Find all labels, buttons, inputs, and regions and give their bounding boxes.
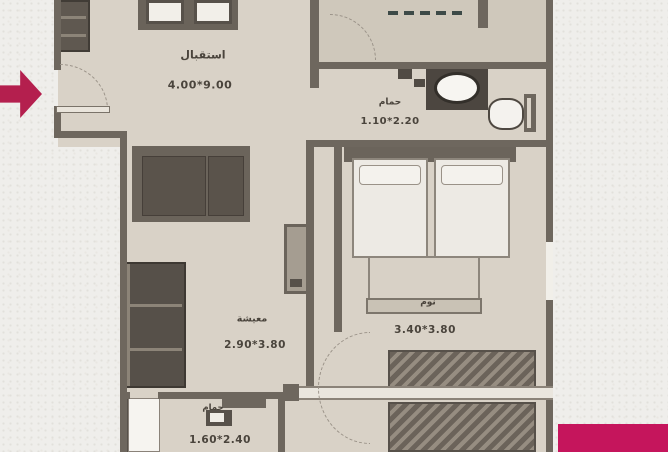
window (546, 240, 553, 302)
wall (310, 0, 319, 88)
bedroom-dimensions: 3.40*3.80 (394, 325, 456, 336)
wall (120, 131, 127, 452)
reception-label: استقبال (180, 50, 225, 61)
accent-rectangle (558, 424, 668, 452)
wall (283, 384, 299, 401)
toilet-tank (524, 94, 536, 132)
wall (120, 392, 130, 399)
bathroom-door-panel (128, 398, 160, 452)
living-dimensions: 2.90*3.80 (224, 340, 286, 351)
sofa-cushion (146, 0, 184, 24)
bathroom-top-dimensions: 1.10*2.20 (360, 117, 419, 127)
bathroom-top-label: حمام (379, 99, 402, 108)
wall (54, 131, 126, 138)
entry-cabinet (56, 0, 90, 52)
bathroom-bottom-label: حمام (202, 404, 223, 413)
sink-icon (434, 72, 480, 104)
wall (54, 0, 61, 70)
living-sofa (132, 146, 250, 222)
tv-unit (124, 262, 186, 388)
living-label: معيشة (237, 314, 268, 324)
reception-dimensions: 4.00*9.00 (168, 80, 233, 91)
wall (314, 62, 553, 69)
wall (306, 140, 314, 390)
bathroom-shelf (398, 68, 412, 79)
toilet-icon (488, 98, 524, 130)
wall (546, 0, 553, 452)
floor-plan: استقبال 4.00*9.00 حمام 1.10*2.20 نوم 3.4… (0, 0, 668, 452)
bathroom-shelf (414, 79, 425, 87)
wall (334, 147, 342, 332)
wall (314, 140, 553, 147)
wall (478, 0, 488, 28)
wall (278, 392, 285, 452)
clipped-text-fragment (388, 0, 468, 5)
wardrobe (388, 350, 536, 388)
sofa-cushion (194, 0, 232, 24)
bed-footer (368, 256, 480, 300)
arrow-right-icon (0, 70, 42, 118)
wardrobe (388, 402, 536, 452)
wall (158, 392, 285, 399)
bed-mattress (434, 158, 510, 258)
bed-mattress (352, 158, 428, 258)
bedroom-label: نوم (420, 299, 436, 308)
entry-door-leaf (56, 106, 110, 113)
bathroom-bottom-dimensions: 1.60*2.40 (189, 435, 251, 446)
